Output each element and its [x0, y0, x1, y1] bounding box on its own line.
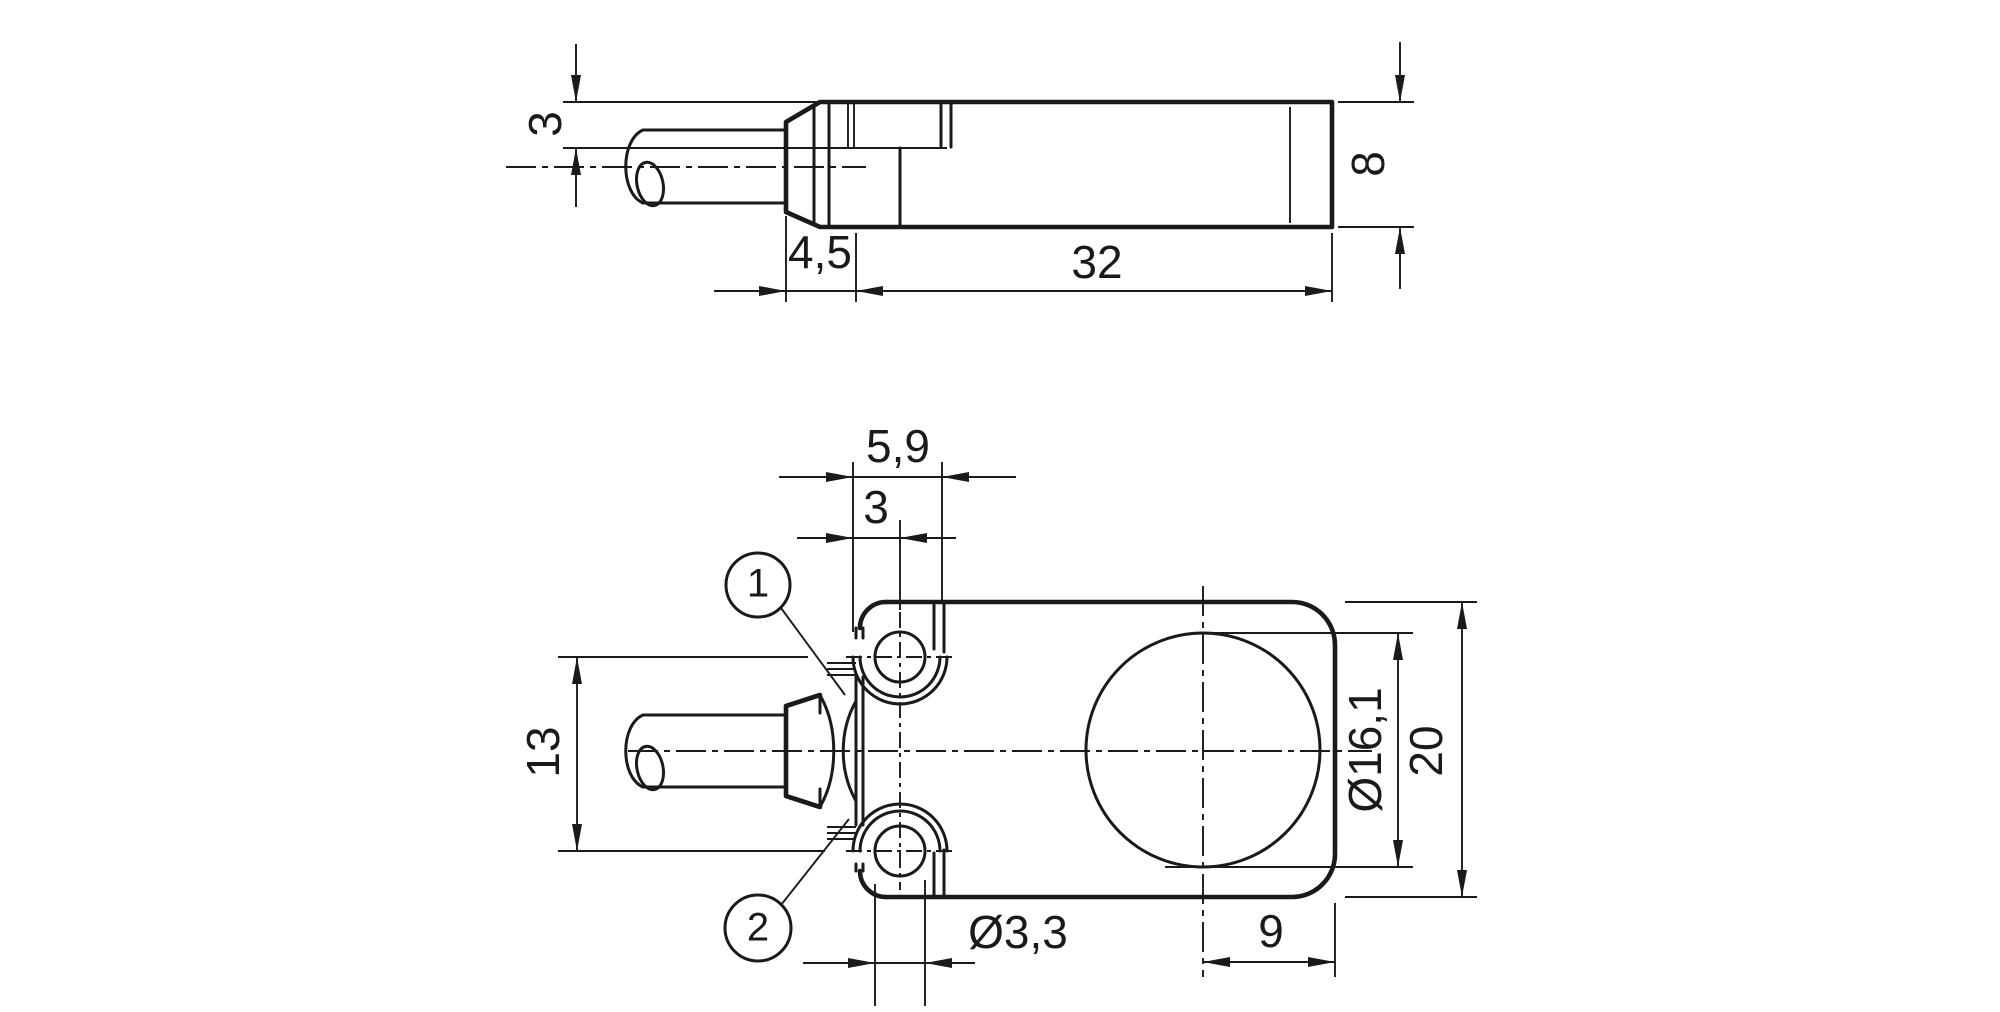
technical-drawing-canvas: 3 4,5 32 8 — [0, 0, 2000, 1012]
dimension-side-8: 8 — [1338, 42, 1414, 289]
dimension-plan-3: 3 — [797, 481, 956, 610]
callout-2-leader — [781, 819, 849, 905]
dim-label-side-32: 32 — [1071, 236, 1122, 288]
dim-label-plan-33: Ø3,3 — [968, 906, 1068, 958]
side-head-seams — [814, 104, 900, 226]
dimension-side-3: 3 — [519, 44, 947, 207]
side-view: 3 4,5 32 8 — [506, 42, 1414, 302]
callout-1-number: 1 — [747, 562, 769, 606]
plan-body-outline — [886, 602, 1335, 897]
callout-2: 2 — [725, 819, 849, 961]
plan-cable — [626, 715, 786, 792]
dim-label-plan-13: 13 — [517, 726, 569, 777]
dimension-plan-9: 9 — [1203, 903, 1335, 977]
drawing-page: 3 4,5 32 8 — [0, 0, 2000, 1012]
callout-2-number: 2 — [747, 906, 769, 950]
callout-1: 1 — [726, 553, 845, 695]
dim-label-plan-9: 9 — [1258, 905, 1284, 957]
dim-label-plan-3: 3 — [863, 481, 889, 533]
dim-label-plan-59: 5,9 — [866, 420, 930, 472]
dim-label-side-8: 8 — [1342, 151, 1394, 177]
dim-label-side-45: 4,5 — [788, 226, 852, 278]
side-latch-notch — [941, 104, 951, 147]
plan-corner-top-left — [860, 602, 886, 628]
callout-1-leader — [781, 608, 845, 695]
dim-label-side-3: 3 — [519, 111, 571, 137]
side-cable — [626, 130, 786, 208]
plan-view: 1 2 5,9 3 — [517, 420, 1477, 1006]
plan-corner-bottom-left — [860, 871, 886, 897]
side-body-outline — [786, 102, 1332, 227]
dim-label-plan-20: 20 — [1400, 725, 1452, 776]
dim-label-plan-161: Ø16,1 — [1339, 687, 1391, 812]
dimension-plan-13: 13 — [517, 657, 825, 851]
